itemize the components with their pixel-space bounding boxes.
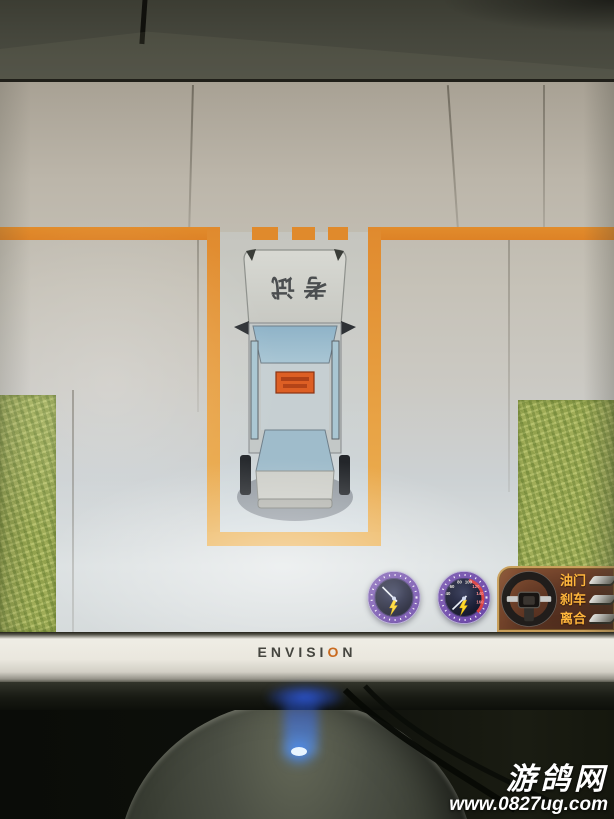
watermark: 游鸽网 www.0827ug.com [449, 764, 608, 815]
rear-bumper [258, 499, 332, 508]
rear-wheel-left [240, 455, 251, 495]
lane-line-left [0, 227, 220, 240]
pedal-bar-icon [588, 595, 614, 603]
pedal-indicator-brake: 刹车 [560, 591, 614, 608]
dial-number: 160 [476, 600, 484, 605]
hood-text: 考试 [263, 273, 327, 300]
pedal-steering-panel: 油门 刹车 离合 [497, 566, 614, 632]
pedal-label-throttle: 油门 [560, 574, 586, 587]
pavement-crack [543, 85, 545, 237]
bay-line-right [368, 227, 381, 546]
grass-patch-left [0, 395, 56, 632]
pavement-crack [188, 85, 194, 235]
monitor-photo: 考试 [0, 0, 614, 819]
lane-line-right [370, 227, 614, 240]
lane-dash [292, 227, 315, 240]
windshield [253, 326, 337, 363]
pedal-indicator-throttle: 油门 [560, 572, 614, 589]
dial-number: 120 [472, 584, 480, 589]
side-windows-left [251, 341, 258, 439]
steering-wheel-icon [500, 570, 558, 628]
monitor-brand-logo: ENVISION [0, 644, 614, 660]
car-top-view: 考试 [228, 245, 362, 530]
tachometer-gauge [367, 570, 421, 624]
dial-number: 60 [450, 584, 455, 589]
background-wall [0, 0, 614, 79]
pavement-crack [508, 232, 510, 492]
dial-number: 140 [476, 591, 484, 596]
pedal-bar-icon [588, 614, 614, 622]
monitor-bezel: ENVISION [0, 632, 614, 682]
dial-number: 80 [457, 580, 462, 585]
power-led-beam [284, 692, 318, 754]
pavement-crack [72, 390, 74, 632]
speedometer-gauge: 40 60 80 100 120 140 160 [437, 570, 491, 624]
pedal-bar-icon [588, 576, 614, 584]
side-mirror-right [341, 321, 356, 335]
side-mirror-left [234, 321, 249, 335]
power-led [291, 747, 307, 756]
lane-dash [328, 227, 348, 240]
pedal-list: 油门 刹车 离合 [560, 572, 614, 627]
pedal-label-brake: 刹车 [560, 593, 586, 606]
simulator-screen: 考试 [0, 82, 614, 632]
trunk [256, 471, 334, 499]
rear-wheel-right [339, 455, 350, 495]
rear-window [256, 430, 334, 471]
pavement-crack [447, 85, 459, 233]
pedal-label-clutch: 离合 [560, 612, 586, 625]
pedal-indicator-clutch: 离合 [560, 610, 614, 627]
cable-icon [139, 0, 147, 44]
side-windows-right [332, 341, 339, 439]
bay-line-left [207, 227, 220, 546]
pavement-crack [197, 237, 199, 412]
brand-text: ENVISI [258, 644, 328, 660]
brand-text: N [342, 644, 356, 660]
bay-line-bottom [207, 532, 381, 546]
lane-dash [252, 227, 278, 240]
watermark-site-name: 游鸽网 [449, 764, 608, 796]
dial-number: 40 [446, 591, 451, 596]
brand-o-letter: O [327, 644, 342, 660]
roof-sign [276, 372, 314, 393]
watermark-site-url: www.0827ug.com [449, 795, 608, 815]
